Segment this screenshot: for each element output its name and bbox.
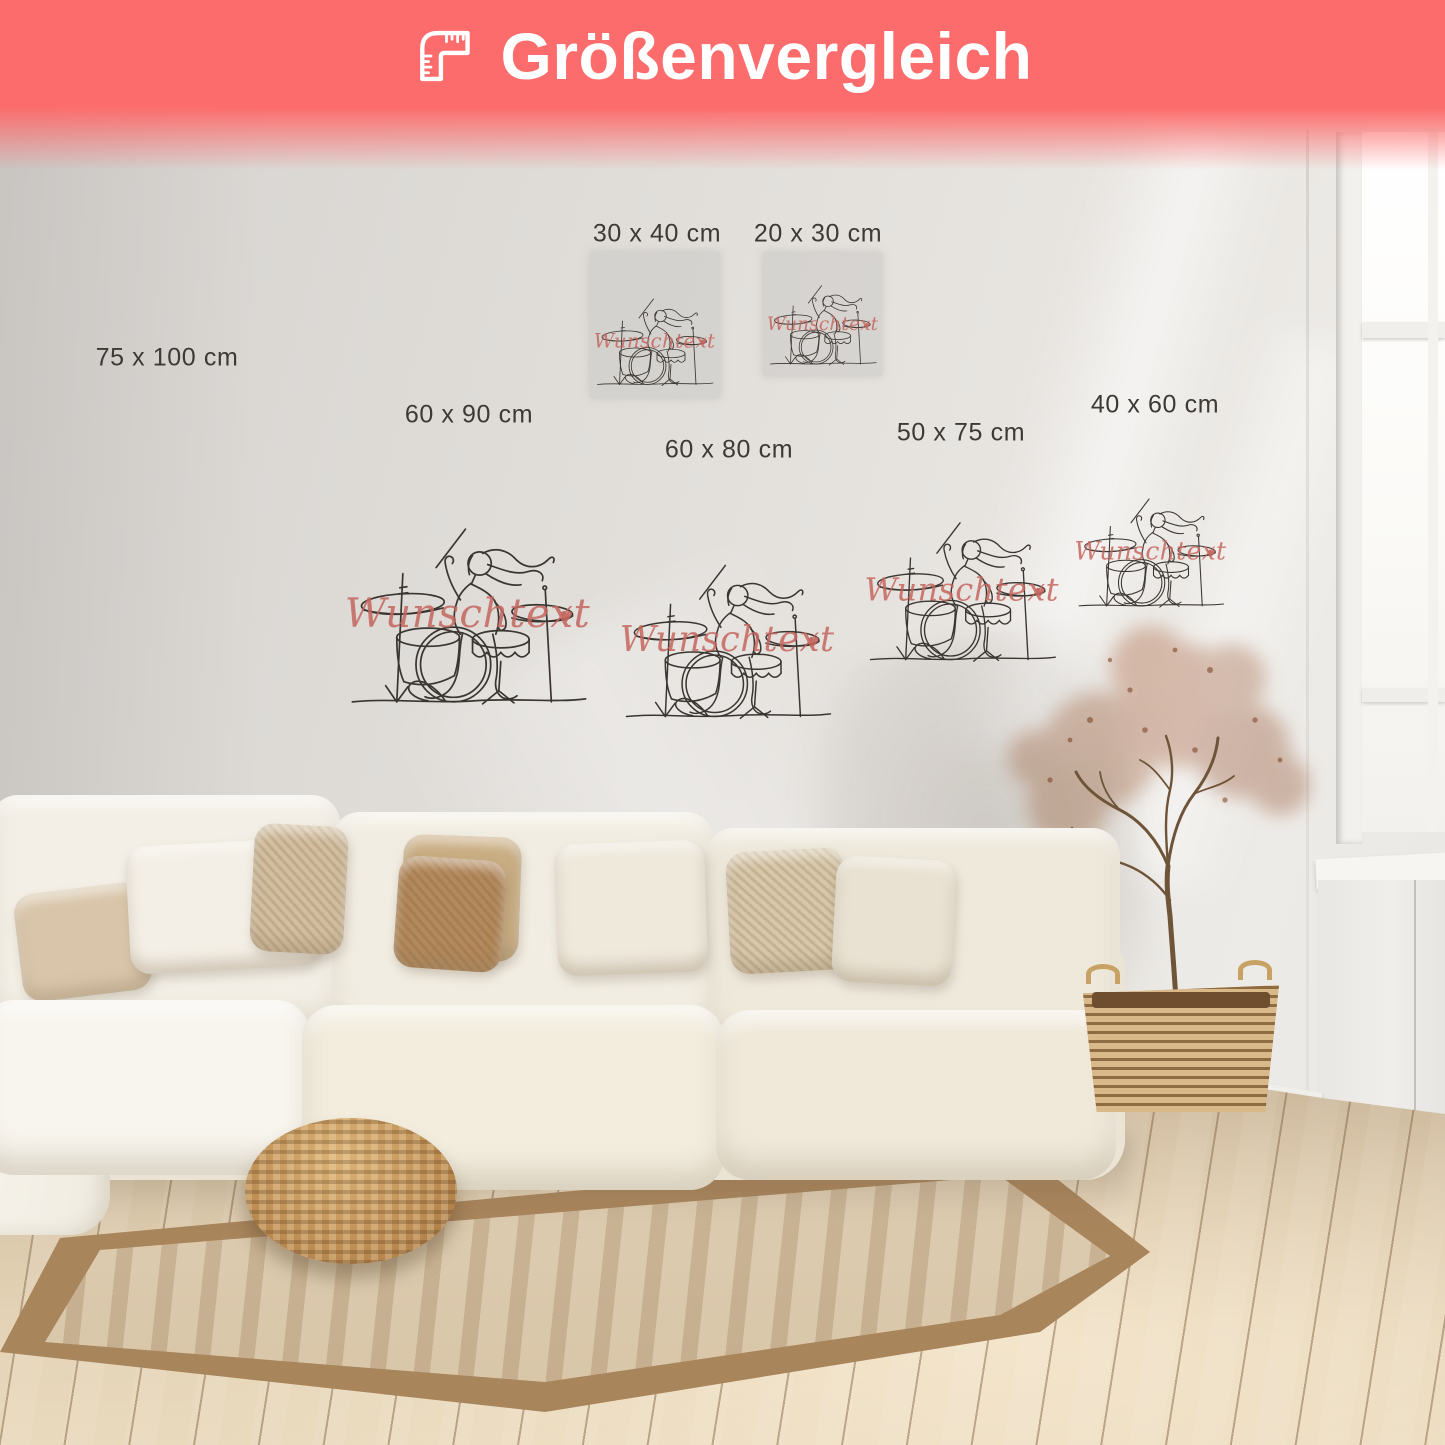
poster-60x90 xyxy=(345,513,592,715)
poster-20x30 xyxy=(763,252,882,376)
throw-pillow xyxy=(831,855,957,987)
throw-pillow xyxy=(249,823,350,956)
window-frame xyxy=(1428,132,1438,832)
poster-art-30x40 xyxy=(595,291,715,391)
poster-60x80 xyxy=(622,540,834,728)
basket-interior xyxy=(1092,992,1270,1008)
sofa-seat-cushion xyxy=(716,1010,1116,1180)
throw-pillow xyxy=(554,839,709,976)
size-label-20x30: 20 x 30 cm xyxy=(754,220,882,249)
size-label-60x80: 60 x 80 cm xyxy=(665,436,793,465)
throw-pillow xyxy=(725,847,849,975)
size-label-40x60: 40 x 60 cm xyxy=(1091,391,1219,420)
poster-art-20x30 xyxy=(768,278,878,370)
size-label-75x100: 75 x 100 cm xyxy=(96,344,239,373)
basket-handle xyxy=(1238,960,1272,980)
header-content: Größenvergleich xyxy=(413,0,1033,112)
header-banner: Größenvergleich xyxy=(0,0,1445,170)
size-label-60x90: 60 x 90 cm xyxy=(405,401,533,430)
poster-40x60 xyxy=(1076,482,1226,614)
size-comparison-mockup: 75 x 100 cm 30 x 40 cm 20 x 30 cm 60 x 9… xyxy=(0,0,1445,1445)
woven-pouf xyxy=(245,1118,457,1264)
basket-handle xyxy=(1086,964,1120,984)
poster-30x40 xyxy=(590,252,720,398)
page-title: Größenvergleich xyxy=(501,18,1033,94)
size-label-30x40: 30 x 40 cm xyxy=(593,220,721,249)
corner-ruler-icon xyxy=(413,20,475,92)
throw-pillow xyxy=(392,854,508,973)
size-label-50x75: 50 x 75 cm xyxy=(897,419,1025,448)
